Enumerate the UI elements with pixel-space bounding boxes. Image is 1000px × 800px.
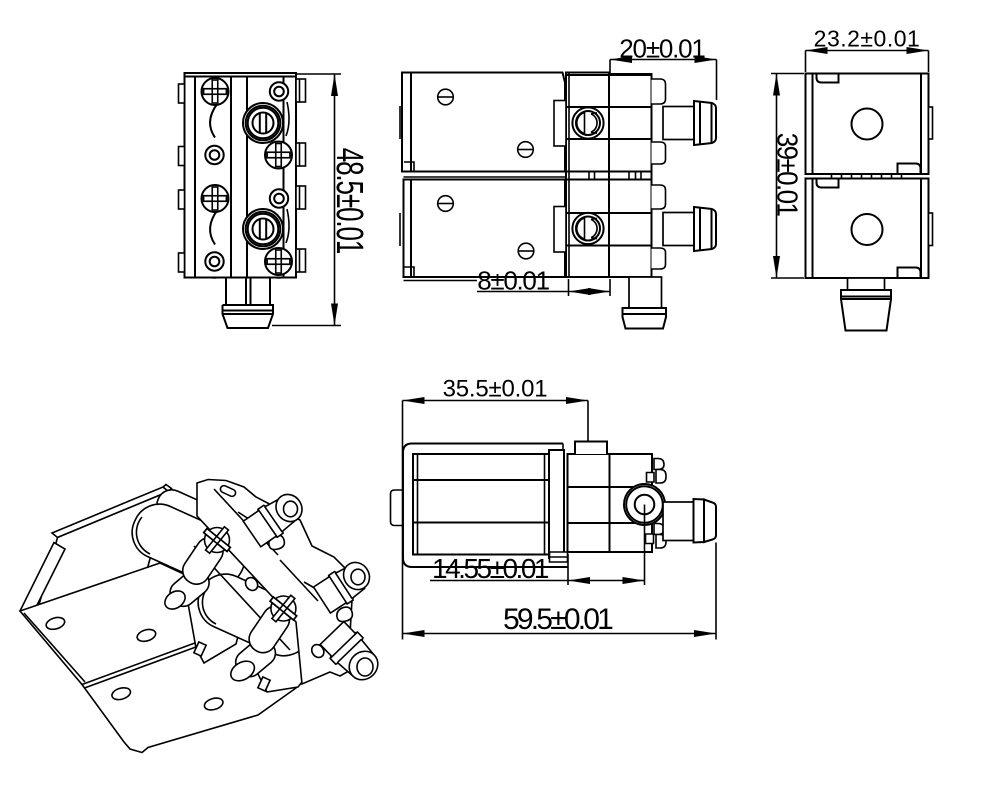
svg-text:35.5±0.01: 35.5±0.01 — [443, 376, 548, 403]
svg-text:59.5±0.01: 59.5±0.01 — [503, 603, 613, 636]
svg-text:14.55±0.01: 14.55±0.01 — [432, 553, 549, 584]
svg-text:48.5±0.01: 48.5±0.01 — [329, 148, 371, 254]
svg-text:23.2±0.01: 23.2±0.01 — [814, 26, 921, 52]
svg-text:20±0.01: 20±0.01 — [619, 34, 705, 64]
svg-text:39±0.01: 39±0.01 — [771, 133, 803, 216]
svg-text:8±0.01: 8±0.01 — [477, 266, 549, 296]
